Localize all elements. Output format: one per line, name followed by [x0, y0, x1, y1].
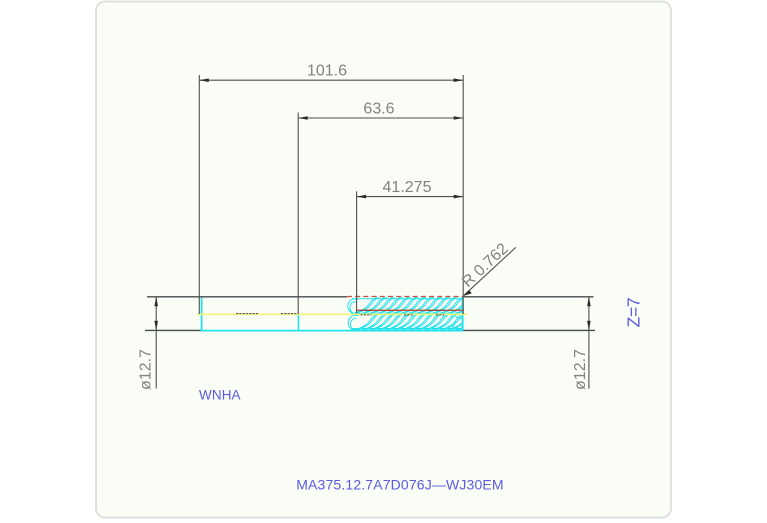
svg-text:ø12.7: ø12.7: [138, 349, 155, 390]
svg-text:MA375.12.7A7D076J—WJ30EM: MA375.12.7A7D076J—WJ30EM: [296, 477, 503, 493]
svg-text:101.6: 101.6: [307, 63, 347, 80]
svg-text:Z=7: Z=7: [624, 298, 644, 328]
svg-text:41.275: 41.275: [383, 179, 432, 196]
svg-text:63.6: 63.6: [363, 101, 394, 118]
svg-text:ø12.7: ø12.7: [572, 349, 589, 390]
svg-text:WNHA: WNHA: [199, 388, 241, 403]
